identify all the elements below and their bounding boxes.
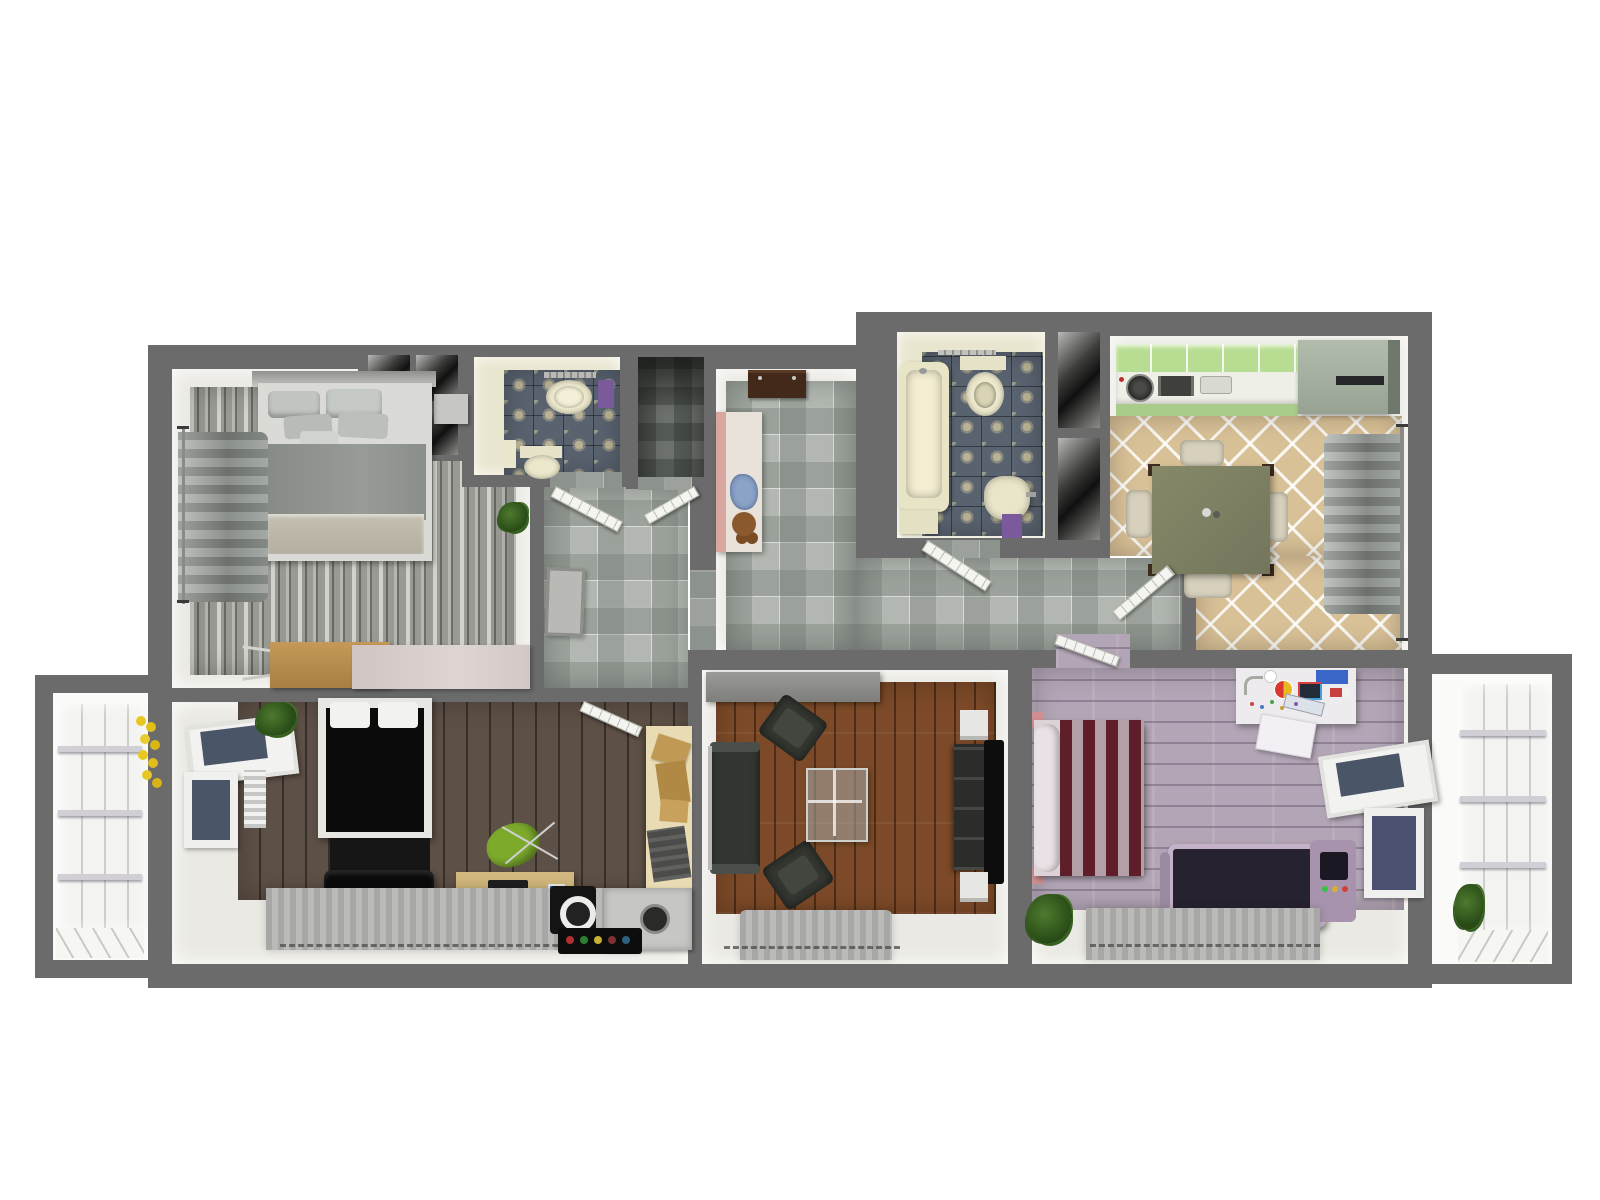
purple-mat — [1002, 514, 1022, 538]
wardrobe-pink-side — [716, 412, 726, 552]
kitchen-curtain — [1324, 434, 1402, 614]
window-glass — [1372, 816, 1416, 890]
red-box — [1330, 688, 1350, 697]
speaker-white — [960, 872, 988, 902]
balcony-right-wall-bottom — [1432, 964, 1572, 984]
bathtub-basin — [906, 370, 942, 498]
balcony-right-rail — [1460, 796, 1546, 802]
kitchen-niche — [1058, 438, 1100, 540]
toilet-bowl — [524, 455, 560, 479]
wall-left — [148, 345, 172, 988]
wall-curtain — [178, 432, 268, 602]
tv-console — [954, 744, 986, 870]
bed-striped-blanket — [1060, 720, 1144, 876]
curtain-rail — [1090, 944, 1320, 947]
balcony-left-rail — [58, 746, 142, 752]
bed-pillow — [378, 702, 418, 728]
console-knob — [792, 376, 796, 380]
wall-mid-left — [172, 688, 702, 702]
rug — [740, 910, 892, 960]
speaker-cone — [560, 896, 596, 932]
teddy-bear — [732, 512, 756, 536]
bath-shelf — [900, 510, 938, 534]
fridge-side — [1388, 340, 1400, 414]
kitchen-niche — [1058, 332, 1100, 428]
balcony-left-rail — [58, 810, 142, 816]
radiator — [244, 770, 266, 828]
purple-towel — [598, 380, 614, 408]
bottle-caps — [566, 936, 574, 944]
balcony-right-floor — [1458, 930, 1548, 962]
doorway-closet — [638, 477, 692, 490]
bed-grey-fold — [266, 514, 424, 554]
flat-tv — [984, 740, 1004, 884]
balcony-left-floor — [56, 928, 144, 958]
framed-picture — [545, 567, 585, 636]
console-table — [748, 370, 806, 398]
curtain-rod-bracket — [177, 426, 189, 429]
doorway-wc — [550, 472, 622, 488]
sofa — [710, 742, 760, 874]
bathtub-faucet — [919, 368, 927, 374]
fabric-stack — [647, 826, 692, 883]
sofa-armrest — [710, 742, 760, 752]
dining-chair — [1180, 440, 1224, 466]
printer-dial — [640, 904, 670, 934]
balcony-left-wall-bottom — [35, 960, 148, 978]
treadmill-buttons — [1322, 886, 1328, 892]
balcony-left-glazing — [56, 700, 152, 936]
long-cabinet — [352, 645, 530, 689]
dining-chair — [1126, 490, 1152, 538]
black-throw — [330, 838, 430, 874]
towel-rail — [544, 372, 596, 378]
floor-hallway-connector — [690, 568, 716, 652]
floor-plan — [0, 0, 1600, 1200]
desk-lamp-chrome — [1244, 676, 1263, 695]
toilet-bowl-inner — [974, 382, 996, 408]
rug — [1086, 908, 1320, 960]
cooktop-round — [1126, 374, 1154, 402]
balcony-left-rail — [58, 874, 142, 880]
stove-knob-red — [1119, 377, 1124, 382]
yellow-flowers — [136, 716, 146, 726]
kitchen-sink — [1200, 376, 1232, 394]
balcony-right-rail — [1460, 730, 1546, 736]
wall-living-top — [702, 650, 1032, 670]
curtain-rod-bracket — [1396, 424, 1408, 427]
cooktop-burners — [1158, 376, 1194, 396]
cardboard-box — [659, 799, 688, 823]
treadmill-screen — [1320, 852, 1348, 880]
floor-bedroom-bottom-left — [238, 702, 688, 900]
bed-grey-pillow — [337, 412, 388, 440]
towel-rack — [938, 350, 996, 355]
dining-table — [1152, 466, 1270, 574]
mug — [1264, 670, 1277, 683]
window-glass — [192, 780, 230, 840]
speaker-white — [960, 710, 988, 740]
curtain-rod — [182, 428, 185, 604]
console-knob — [758, 376, 762, 380]
dining-chair — [1184, 570, 1232, 598]
pedestal — [504, 440, 516, 468]
wash-basin-bowl — [554, 386, 584, 408]
kitchen-counter-base — [1116, 404, 1298, 416]
treadmill-handle — [1160, 852, 1170, 910]
balcony-left-wall-side — [35, 675, 53, 978]
curtain-rod-bracket — [1396, 638, 1408, 641]
balcony-right-wall-side — [1552, 654, 1572, 984]
fridge-handle — [1336, 376, 1384, 385]
bed-pillow-roll — [1034, 724, 1060, 872]
sofa-frame-chrome — [708, 746, 712, 870]
nightstand — [434, 394, 468, 424]
curtain-rail — [724, 946, 900, 949]
curtain-rod-bracket — [177, 600, 189, 603]
wall-bottom — [148, 964, 1432, 988]
floor-closet-niche — [638, 357, 704, 477]
glass-coffee-table — [806, 768, 868, 842]
balcony-right-wall-top — [1432, 654, 1572, 674]
blue-towels — [730, 474, 758, 510]
desk-clutter — [1250, 702, 1254, 706]
balcony-right-rail — [1460, 862, 1546, 868]
sofa-armrest — [710, 864, 760, 874]
coffee-table-cross — [808, 800, 862, 803]
kitchen-cabinets-green — [1116, 344, 1298, 372]
bed-pillow — [330, 702, 370, 728]
bed-grey-blanket — [264, 444, 426, 520]
basin-tap — [1026, 492, 1036, 497]
kitchen-curtain-rod — [1400, 426, 1404, 640]
toilet-tank — [960, 356, 1006, 370]
coffee-table-cross — [833, 770, 836, 836]
table-centerpiece — [1202, 508, 1211, 517]
